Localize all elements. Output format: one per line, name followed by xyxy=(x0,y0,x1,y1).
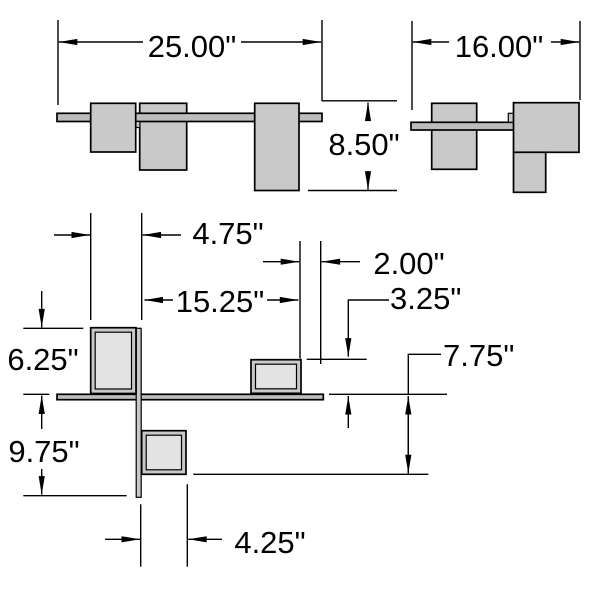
plan-stem-depth-label: 9.75" xyxy=(8,434,79,469)
leader-line xyxy=(348,300,389,357)
plan-right-box-inner xyxy=(256,364,297,389)
front-view: 25.00" 8.50" xyxy=(57,20,400,191)
plan-right-depth-label: 3.25" xyxy=(390,281,461,316)
side-shade-middle xyxy=(432,103,477,169)
plan-left-depth-label: 6.25" xyxy=(7,342,78,377)
plan-stem xyxy=(136,328,141,497)
drawing-canvas: 25.00" 8.50" 16.00" 4.75" xyxy=(0,0,600,600)
plan-mount-bar xyxy=(57,394,323,399)
plan-lower-depth-label: 7.75" xyxy=(443,338,514,373)
front-shade-3 xyxy=(255,103,299,190)
plan-lower-width-label: 4.25" xyxy=(234,525,305,560)
side-body-upper xyxy=(514,103,580,153)
drawing-page: 25.00" 8.50" 16.00" 4.75" xyxy=(0,0,600,600)
front-height-label: 8.50" xyxy=(328,127,399,162)
leader-line xyxy=(408,354,441,393)
side-view: 16.00" xyxy=(411,21,580,192)
plan-left-inset-label: 4.75" xyxy=(192,216,263,251)
plan-center-span-label: 15.25" xyxy=(176,284,265,319)
plan-right-inset-label: 2.00" xyxy=(373,246,444,281)
plan-left-box-inner xyxy=(95,332,131,389)
front-shade-1 xyxy=(91,103,136,152)
side-width-label: 16.00" xyxy=(455,29,544,64)
side-body-lower xyxy=(514,152,546,192)
side-mount-bar xyxy=(411,122,514,130)
plan-view: 4.75" 2.00" 15.25" 3.25" 6.25" 9.75" 7.7 xyxy=(7,213,514,567)
front-width-label: 25.00" xyxy=(148,29,237,64)
plan-lower-box-inner xyxy=(146,435,181,470)
